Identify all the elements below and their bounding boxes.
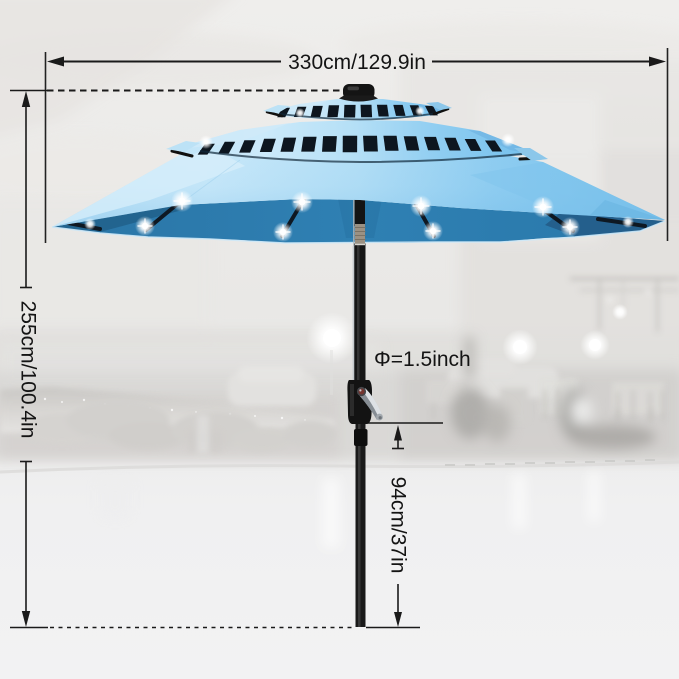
svg-text:Φ=1.5inch: Φ=1.5inch <box>374 348 471 371</box>
svg-text:255cm/100.4in: 255cm/100.4in <box>17 301 40 439</box>
svg-text:94cm/37in: 94cm/37in <box>387 477 410 574</box>
svg-text:330cm/129.9in: 330cm/129.9in <box>288 51 426 74</box>
